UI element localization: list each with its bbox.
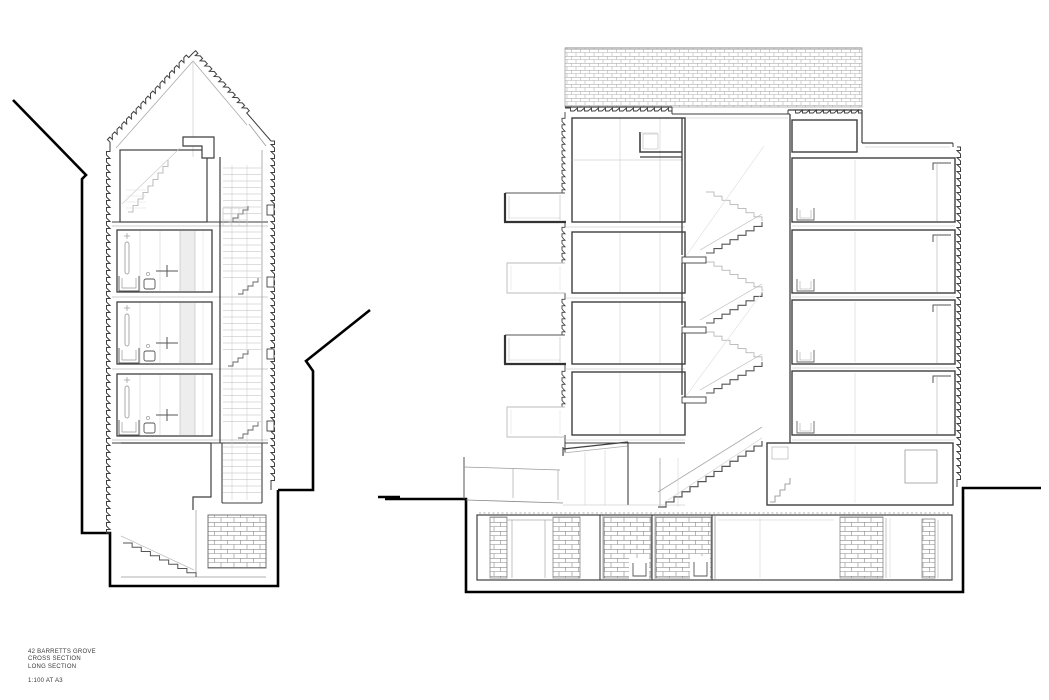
basement-stair: [123, 543, 196, 577]
door-head: [933, 305, 951, 312]
brick-pier: [490, 517, 507, 578]
room-left-3: [572, 232, 685, 293]
stair-flight: [706, 292, 762, 323]
basement-long: [477, 513, 952, 580]
room-right-top: [792, 120, 857, 152]
attic-stair: [128, 160, 168, 212]
toothed-wall-right: [957, 147, 961, 487]
brick-elevation-hatch: [565, 48, 862, 107]
radiator: [125, 242, 129, 274]
long-section-drawing: [385, 48, 1041, 592]
bay-window-beyond-2: [507, 407, 565, 437]
toothed-roof-left-slope: [107, 53, 193, 142]
wardrobe-band: [180, 375, 195, 435]
room-left-2: [572, 302, 685, 364]
rooms-left: [565, 118, 685, 443]
drawing-name-long: LONG SECTION: [28, 664, 96, 671]
room-right-3: [792, 230, 955, 293]
basement-cross: [121, 443, 266, 577]
wardrobe-band: [180, 303, 195, 363]
bay-window-cut-2: [504, 335, 566, 364]
wardrobe-band: [180, 231, 195, 291]
wall-opening: [267, 349, 274, 359]
door-head: [933, 163, 951, 170]
radiator: [125, 386, 129, 418]
window-beyond: [905, 450, 937, 483]
room-right-1: [792, 371, 955, 435]
stair-landing: [682, 327, 706, 333]
stair-flight: [706, 362, 762, 393]
toilet: [144, 351, 155, 361]
cross-section-drawing: [13, 51, 400, 586]
bathroom-room-3: [117, 374, 212, 436]
toilet: [144, 279, 155, 289]
brick-wall-hatch: [208, 515, 266, 568]
neighbour-outline-right: [278, 310, 370, 490]
wall-opening: [267, 205, 274, 215]
stair-shaft: [220, 150, 274, 503]
room-left-1: [572, 372, 685, 435]
stair-flight: [706, 222, 762, 253]
stair-shaft-long: [658, 114, 790, 507]
bathroom-room-2: [117, 302, 212, 364]
toothed-wall-right: [271, 141, 275, 490]
stair-flight-beyond: [706, 192, 762, 221]
rooms-right: [767, 120, 955, 505]
attic-room: [120, 137, 214, 222]
title-block: 42 BARRETTS GROVE CROSS SECTION LONG SEC…: [28, 649, 96, 686]
drawing-sheet: 42 BARRETTS GROVE CROSS SECTION LONG SEC…: [0, 0, 1049, 700]
ground-floor-extension: [464, 442, 685, 505]
bay-window-cut-1: [504, 193, 566, 222]
bay-window-beyond-1: [507, 263, 565, 293]
brick-pier: [553, 517, 580, 578]
ground-stair-flight: [658, 441, 762, 507]
party-wall-brick: [565, 48, 862, 107]
toothed-roof-right-slope: [193, 51, 252, 119]
radiator: [125, 314, 129, 346]
door-head: [933, 235, 951, 242]
architectural-sections-drawing: [0, 0, 1049, 700]
drawing-name-cross: CROSS SECTION: [28, 656, 96, 663]
stair-landing: [682, 397, 706, 403]
brick-pier: [840, 517, 883, 578]
drawing-scale: 1:100 AT A3: [28, 678, 96, 685]
wall-opening: [267, 421, 274, 431]
site-ground-line: [385, 488, 1041, 592]
room-right-ground: [767, 443, 953, 505]
stair-flight-beyond: [706, 332, 762, 361]
stair-flight-beyond: [706, 262, 762, 291]
dentil-course-left: [565, 108, 672, 111]
bathroom-room-1: [117, 230, 212, 292]
door-head: [933, 376, 951, 383]
room-left-top: [572, 118, 685, 222]
wall-opening: [267, 277, 274, 287]
stair-landing: [682, 257, 706, 263]
facade-left: [562, 112, 565, 452]
room-right-4: [792, 158, 955, 222]
toothed-wall-left: [107, 142, 111, 533]
project-title: 42 BARRETTS GROVE: [28, 649, 96, 656]
toilet: [144, 423, 155, 433]
room-right-2: [792, 300, 955, 364]
brick-pier: [922, 519, 935, 578]
chimney-wall: [183, 137, 214, 158]
